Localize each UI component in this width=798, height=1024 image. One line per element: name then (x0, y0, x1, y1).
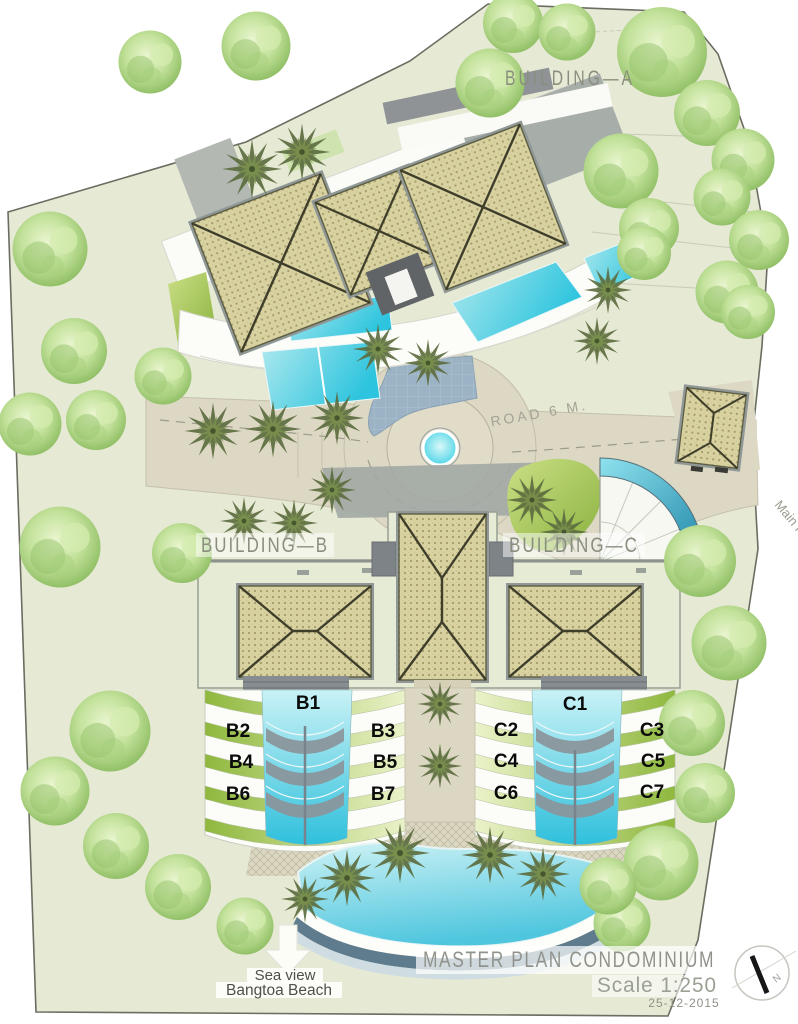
tree-canopy (539, 3, 596, 60)
unit-label-b4: B4 (229, 752, 254, 773)
unit-label-c2: C2 (494, 720, 518, 741)
tree-canopy (145, 854, 211, 920)
tree-canopy (66, 390, 126, 450)
unit-label-b6: B6 (226, 784, 250, 805)
tree-canopy (692, 606, 767, 681)
building-c-roof (506, 583, 644, 680)
unit-label-b3: B3 (371, 721, 395, 742)
tree-canopy (222, 12, 291, 81)
stair-block-left (372, 542, 396, 576)
tree-canopy (675, 763, 735, 823)
tree-canopy (721, 285, 775, 339)
central-roof (396, 511, 489, 683)
unit-label-c1: C1 (563, 694, 588, 715)
unit-label-c3: C3 (640, 720, 664, 741)
master-plan-drawing: BUILDING—A ROAD 6 M. Main R BUILDING—B B… (0, 0, 798, 1024)
plan-title: MASTER PLAN CONDOMINIUM (423, 947, 715, 972)
tree-canopy (0, 393, 62, 456)
tree-canopy (13, 212, 88, 287)
building-a-label: BUILDING—A (505, 67, 635, 90)
unit-label-c4: C4 (494, 751, 519, 772)
tree-canopy (617, 226, 671, 280)
tree-canopy (217, 898, 274, 955)
unit-label-b2: B2 (226, 721, 250, 742)
beach-name-label: Bangtoa Beach (226, 982, 332, 999)
unit-label-b5: B5 (373, 752, 398, 773)
tree-canopy (70, 691, 151, 772)
pool-left (262, 342, 380, 410)
unit-label-b7: B7 (371, 784, 395, 805)
site-plan-canvas: BUILDING—A ROAD 6 M. Main R BUILDING—B B… (0, 0, 798, 1024)
tree-canopy (135, 348, 192, 405)
tree-canopy (20, 507, 101, 588)
tree-canopy (584, 134, 659, 209)
tree-canopy (83, 813, 149, 879)
tree-canopy (41, 318, 107, 384)
tree-canopy (659, 690, 725, 756)
building-c-label: BUILDING—C (509, 534, 639, 557)
scale-label: Scale 1:250 (597, 974, 717, 997)
tree-canopy (119, 31, 182, 94)
date-label: 25-12-2015 (648, 996, 719, 1010)
unit-label-c6: C6 (494, 783, 518, 804)
unit-label-c7: C7 (640, 782, 664, 803)
building-b-roof (236, 583, 374, 680)
unit-label-c5: C5 (641, 751, 666, 772)
building-b-label: BUILDING—B (201, 534, 329, 557)
unit-label-b1: B1 (296, 693, 321, 714)
fountain (423, 431, 457, 465)
tree-canopy (729, 210, 789, 270)
tree-canopy (664, 525, 736, 597)
tree-canopy (21, 757, 90, 826)
guard-pavilion (674, 384, 750, 476)
tree-canopy (580, 858, 637, 915)
